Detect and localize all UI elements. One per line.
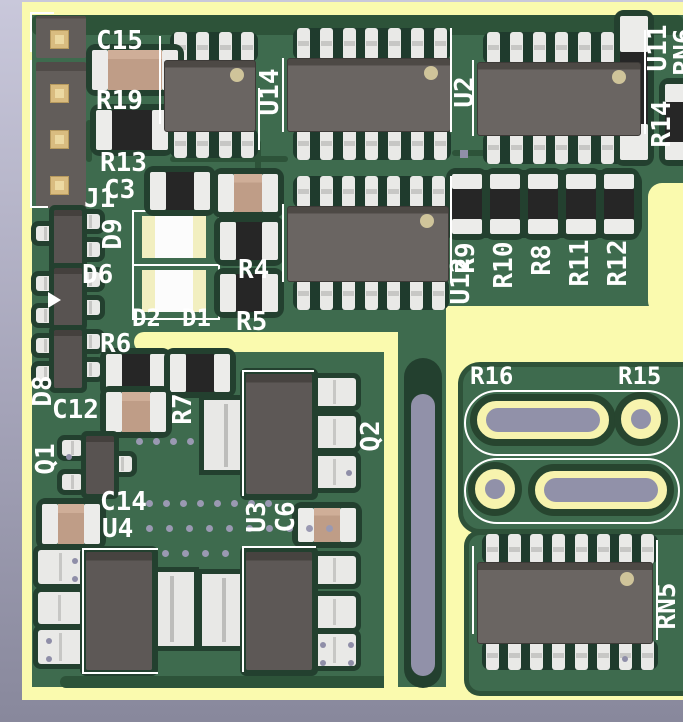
designator-u2: U2: [452, 76, 478, 107]
via-square-1: [460, 150, 468, 158]
designator-c12: C12: [52, 397, 99, 423]
u14-silk-left: [159, 36, 161, 124]
u3-silk-left: [242, 546, 244, 672]
u3-pad-2: [314, 596, 356, 628]
j1-silk-b: [30, 12, 32, 52]
u4-tab: [150, 572, 194, 646]
d9-pad-r2: [80, 242, 100, 257]
u11-pin1-dot: [612, 70, 626, 84]
component-u4: [86, 552, 152, 670]
component-r8: [528, 174, 558, 234]
designator-r13: R13: [100, 150, 147, 176]
rn5-pins-top: [482, 534, 658, 564]
j1-pad-3: [50, 130, 69, 149]
d6-pad-r2: [80, 300, 100, 315]
q2-silk-top: [244, 370, 314, 372]
u3-via-2: [348, 642, 354, 648]
u4-silk-top: [82, 548, 158, 550]
component-c3: [218, 174, 278, 212]
q2-pad-2: [314, 416, 356, 448]
u2-pins-bottom: [293, 128, 451, 160]
j1-silk-c: [30, 60, 32, 208]
u12-pin1-dot: [420, 214, 434, 228]
designator-u3: U3: [244, 501, 270, 532]
d6-pad-l2: [36, 308, 54, 323]
d6-polarity-triangle: [48, 292, 61, 308]
component-r11: [566, 174, 596, 234]
r15-slot-hole: [544, 478, 658, 502]
q1-via: [66, 454, 72, 460]
component-r13: [150, 172, 210, 210]
designator-c15: C15: [96, 28, 143, 54]
u4-silk-bottom: [82, 672, 158, 674]
r16-slot-hole: [486, 408, 600, 432]
u4-via-2: [72, 576, 78, 582]
designator-c14: C14: [100, 489, 147, 515]
d8-pad-r1: [80, 334, 100, 349]
designator-r7: R7: [170, 393, 196, 424]
designator-d1: D1: [182, 306, 211, 330]
component-d8: [54, 330, 82, 388]
component-d2: [142, 216, 206, 258]
q2-pad-1: [314, 378, 356, 406]
designator-u4: U4: [102, 516, 133, 542]
designator-d9: D9: [100, 218, 126, 249]
board-edge-top: [32, 2, 683, 15]
designator-r16: R16: [470, 364, 513, 388]
designator-r12: R12: [605, 240, 631, 287]
j1-silk-a: [30, 12, 54, 14]
component-u3: [246, 552, 312, 670]
rn5-silk-left: [472, 546, 474, 634]
rn5-pin1-dot: [620, 572, 634, 586]
d8-pad-r2: [80, 362, 100, 377]
component-c14: [42, 504, 100, 544]
u12-pins-top: [293, 176, 449, 208]
via-row-1: [136, 438, 194, 445]
u3-via-4: [348, 660, 354, 666]
u3-via-3: [320, 660, 326, 666]
u3-pad-1: [314, 556, 356, 584]
d8-pad-l1: [36, 338, 54, 353]
designator-r10: R10: [491, 242, 517, 289]
designator-c6: C6: [273, 501, 299, 532]
u4-pad-3: [38, 630, 84, 664]
designator-rn5: RN5: [654, 583, 680, 630]
d9-pad-l1: [36, 226, 54, 241]
component-r7: [170, 354, 230, 392]
pcb-3d-viewport[interactable]: J1 C15 R19 R13 C3 U14 U2 U11 RN6 R14 R9 …: [0, 0, 683, 722]
designator-r5: R5: [236, 309, 267, 335]
u4-via-3: [46, 638, 52, 644]
u11-pins-bottom: [483, 132, 641, 164]
d6-pad-l1: [36, 276, 54, 291]
u14-pins-top: [170, 32, 258, 62]
component-r10: [490, 174, 520, 234]
component-r6: [106, 354, 166, 392]
designator-u11: U11: [645, 25, 671, 72]
designator-r11: R11: [567, 240, 593, 287]
u14-pin1-dot: [230, 68, 244, 82]
designator-r8: R8: [529, 244, 555, 275]
q2-via: [346, 470, 352, 476]
component-r9: [452, 174, 482, 234]
u11-pins-top: [483, 32, 641, 64]
component-r19: [96, 110, 168, 150]
designator-d2: D2: [132, 306, 161, 330]
j1-pad-4: [50, 176, 69, 195]
rn5-via: [622, 656, 628, 662]
j1-silk-d: [30, 206, 48, 208]
q1-pad-l2: [62, 474, 82, 490]
component-d9: [54, 210, 82, 268]
designator-r4: R4: [238, 257, 269, 283]
u3-tab: [202, 574, 246, 646]
u14-pins-bottom: [170, 128, 258, 158]
u3-silk-top: [244, 546, 316, 548]
designator-d6: D6: [82, 262, 113, 288]
d9-pad-r1: [80, 214, 100, 229]
u4-silk-left: [82, 548, 84, 674]
u4-pad-2: [38, 592, 82, 624]
u2-pin1-dot: [424, 66, 438, 80]
routed-slot: [411, 394, 435, 676]
component-q1: [86, 436, 114, 494]
designator-c3: C3: [104, 177, 135, 203]
designator-r14: R14: [649, 101, 675, 148]
designator-u12: U12: [448, 258, 474, 305]
designator-q2: Q2: [358, 420, 384, 451]
u2-pins-top: [293, 28, 451, 60]
zone-yellow-arm: [648, 183, 683, 315]
via-row-3: [146, 525, 333, 532]
r16-round-hole: [631, 409, 651, 429]
designator-r19: R19: [96, 88, 143, 114]
designator-r6: R6: [100, 331, 131, 357]
rn5-pins-bottom: [482, 640, 658, 670]
designator-q1: Q1: [33, 443, 59, 474]
u3-via-1: [320, 642, 326, 648]
u4-via-4: [46, 656, 52, 662]
designator-r15: R15: [618, 364, 661, 388]
q2-silk-left: [242, 370, 244, 496]
designator-rn6: RN6: [671, 29, 683, 76]
u12-silk-left: [282, 204, 284, 282]
j1-pad-2: [50, 84, 69, 103]
zone-yellow-trace-vertical: [384, 338, 398, 688]
trace-band-bottom: [60, 676, 390, 688]
j1-pad-1: [50, 30, 69, 49]
r15-round-hole: [485, 479, 505, 499]
designator-u14: U14: [257, 69, 283, 116]
u4-via-1: [72, 558, 78, 564]
q1-pad-l1: [62, 440, 82, 456]
via-row-4: [162, 550, 229, 557]
u12-pins-bottom: [293, 278, 449, 310]
component-q2: [246, 374, 312, 494]
component-r12: [604, 174, 634, 234]
trace-2: [86, 120, 92, 162]
component-c12: [106, 392, 166, 432]
q1-pad-r1: [112, 456, 132, 472]
